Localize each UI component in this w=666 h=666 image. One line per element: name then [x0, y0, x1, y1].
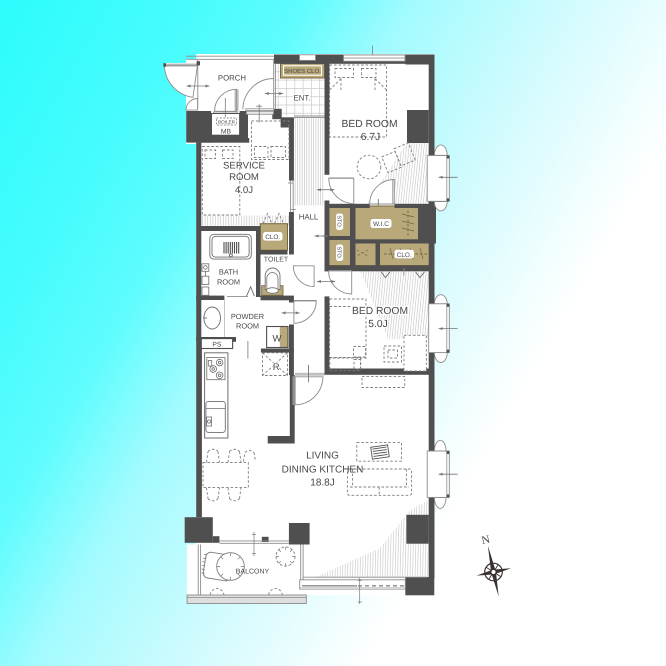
svg-text:W: W: [273, 333, 282, 344]
svg-text:TOILET: TOILET: [264, 257, 289, 264]
svg-text:CLO.: CLO.: [397, 252, 412, 259]
svg-text:BED ROOM: BED ROOM: [341, 119, 397, 130]
svg-text:4.0J: 4.0J: [235, 185, 253, 196]
svg-text:ROOM: ROOM: [229, 172, 259, 183]
svg-text:LIVING: LIVING: [306, 451, 339, 462]
svg-text:BATH: BATH: [219, 268, 238, 277]
svg-text:PS: PS: [212, 341, 222, 348]
svg-text:SHOES CLO.: SHOES CLO.: [284, 68, 321, 75]
svg-text:STO.: STO.: [336, 215, 342, 228]
svg-text:ROOM: ROOM: [236, 322, 259, 331]
svg-text:BED ROOM: BED ROOM: [352, 306, 408, 317]
svg-text:HALL: HALL: [299, 213, 319, 222]
svg-text:POWDER: POWDER: [231, 312, 264, 321]
svg-text:6.7J: 6.7J: [361, 132, 380, 143]
svg-text:ROOM: ROOM: [217, 277, 240, 286]
svg-text:MB: MB: [221, 128, 232, 135]
svg-text:5.0J: 5.0J: [368, 319, 387, 330]
svg-text:18.8J: 18.8J: [310, 477, 334, 488]
svg-text:BOILER: BOILER: [218, 119, 236, 124]
svg-text:STO.: STO.: [336, 246, 342, 259]
svg-text:R: R: [273, 362, 280, 373]
svg-text:W.I.C: W.I.C: [373, 221, 389, 228]
svg-text:PORCH: PORCH: [218, 73, 246, 82]
svg-text:SERVICE: SERVICE: [223, 161, 265, 172]
svg-text:DINING KITCHEN: DINING KITCHEN: [282, 464, 364, 475]
svg-text:ENT.: ENT.: [294, 94, 311, 103]
svg-text:BALCONY: BALCONY: [236, 569, 270, 576]
svg-text:CLO.: CLO.: [265, 234, 280, 241]
